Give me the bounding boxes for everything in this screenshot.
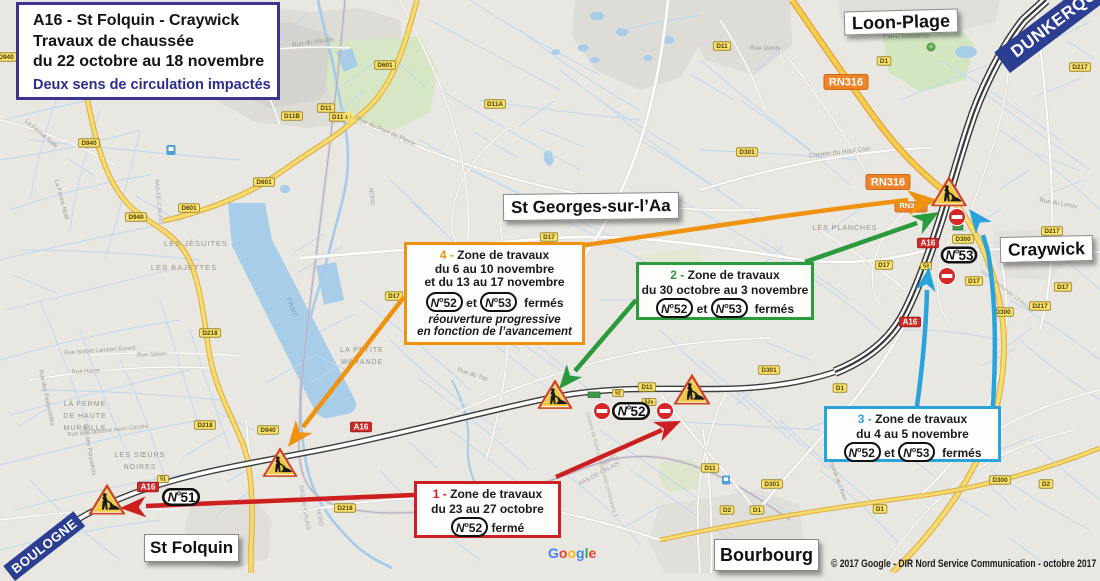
svg-text:D1: D1 [876,506,885,513]
svg-text:D11: D11 [704,465,716,472]
svg-text:D940: D940 [81,140,97,147]
svg-text:D2: D2 [723,507,732,514]
svg-text:D217: D217 [1072,64,1088,71]
svg-text:51: 51 [160,476,166,482]
svg-text:D1: D1 [836,385,845,392]
svg-text:D300: D300 [995,309,1011,316]
svg-text:D2: D2 [1042,481,1051,488]
svg-text:D217: D217 [1032,303,1048,310]
svg-text:LES JÉSUITES: LES JÉSUITES [164,239,228,248]
svg-text:RN316: RN316 [871,177,905,189]
svg-text:D17: D17 [968,278,980,285]
svg-text:52: 52 [631,404,646,419]
svg-text:Rue Denis: Rue Denis [750,45,781,52]
svg-text:D217: D217 [1044,228,1060,235]
svg-text:D11A: D11A [487,101,503,108]
svg-text:D300: D300 [992,477,1008,484]
svg-text:D601: D601 [181,205,197,212]
svg-text:D11: D11 [320,105,332,112]
svg-text:D218: D218 [337,505,353,512]
svg-text:RN316: RN316 [829,77,863,89]
svg-text:D301: D301 [764,481,780,488]
svg-text:NOIRES: NOIRES [124,464,157,471]
svg-text:A16: A16 [354,422,369,431]
svg-text:D218: D218 [197,422,213,429]
svg-text:LES PLANCHES: LES PLANCHES [813,225,878,232]
svg-text:D17: D17 [1057,284,1069,291]
svg-text:LES BAJETTES: LES BAJETTES [151,263,217,272]
svg-text:D11: D11 [641,384,653,391]
svg-text:LES SŒURS: LES SŒURS [115,452,166,459]
svg-text:WARANDE: WARANDE [341,359,384,366]
svg-text:D1: D1 [880,58,889,65]
svg-text:A16: A16 [903,317,918,326]
svg-text:D17: D17 [543,234,555,241]
svg-text:D601: D601 [377,62,393,69]
svg-text:A16: A16 [141,482,156,491]
svg-text:D11B: D11B [284,113,300,120]
svg-text:D1: D1 [753,507,762,514]
svg-text:D940: D940 [260,427,276,434]
svg-text:D301: D301 [739,149,755,156]
svg-text:D301: D301 [761,367,777,374]
svg-text:D300: D300 [955,236,971,243]
svg-text:D601: D601 [256,179,272,186]
svg-text:D940: D940 [0,54,14,61]
svg-text:A16: A16 [921,238,936,247]
svg-text:51: 51 [181,490,197,505]
svg-text:53: 53 [923,263,929,269]
svg-text:LA FERME: LA FERME [64,401,107,408]
svg-text:53: 53 [959,248,975,263]
svg-text:D11: D11 [716,43,728,50]
svg-text:D17: D17 [388,293,400,300]
svg-text:D940: D940 [128,214,144,221]
svg-text:DE HAUTE: DE HAUTE [63,413,106,420]
svg-text:D17: D17 [878,262,890,269]
svg-text:D218: D218 [202,330,218,337]
svg-text:52: 52 [615,390,621,396]
